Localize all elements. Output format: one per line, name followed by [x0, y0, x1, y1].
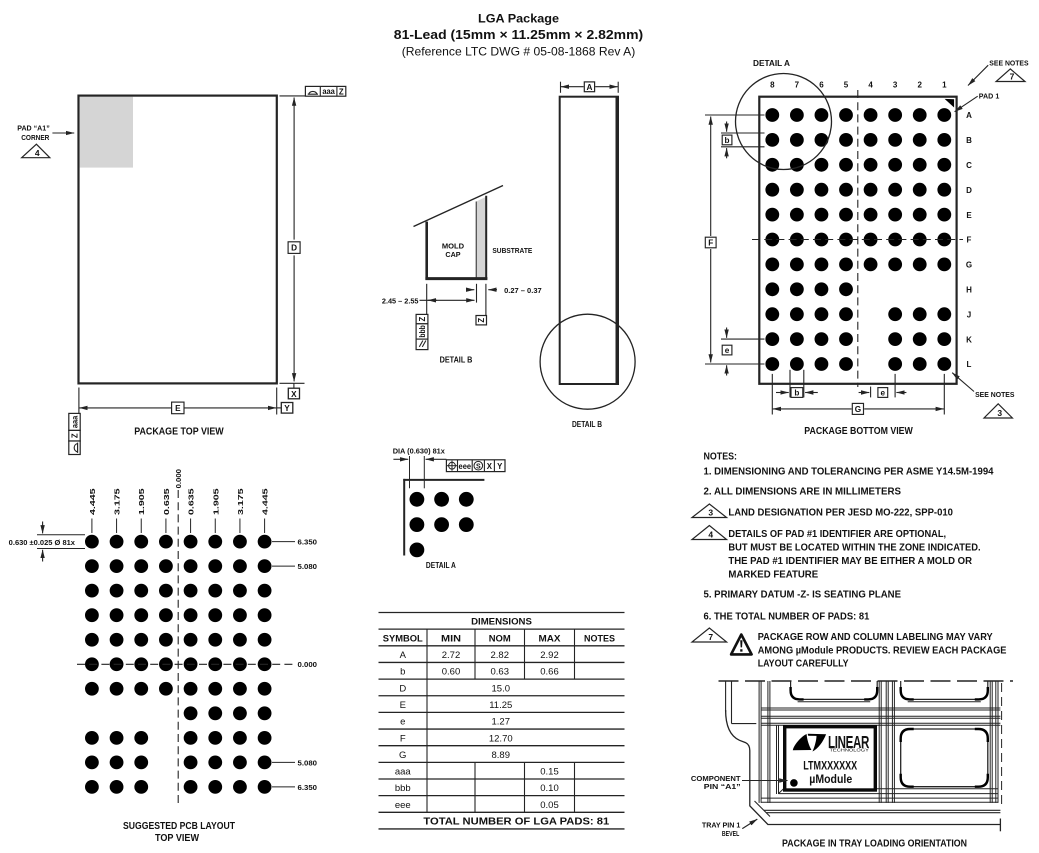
svg-text:NOTES:: NOTES: — [704, 452, 738, 463]
svg-text:3.175: 3.175 — [113, 488, 122, 515]
svg-text:2.92: 2.92 — [540, 650, 559, 661]
svg-text:LAND DESIGNATION PER JESD MO-2: LAND DESIGNATION PER JESD MO-222, SPP-01… — [728, 508, 953, 519]
svg-text:6.350: 6.350 — [298, 538, 318, 547]
svg-text:7: 7 — [708, 632, 713, 642]
svg-text:S: S — [476, 464, 481, 471]
svg-text:3.175: 3.175 — [236, 488, 245, 515]
svg-text:15.0: 15.0 — [492, 683, 511, 694]
svg-text:8: 8 — [770, 80, 775, 89]
svg-text:Y: Y — [284, 404, 290, 413]
svg-text:DETAIL A: DETAIL A — [753, 59, 790, 68]
svg-text:0.63: 0.63 — [491, 667, 510, 678]
svg-text:e: e — [400, 717, 405, 728]
svg-text:bbb: bbb — [418, 325, 427, 338]
svg-text:TOP VIEW: TOP VIEW — [155, 833, 200, 844]
svg-text:0.66: 0.66 — [540, 667, 559, 678]
svg-text:0.27 – 0.37: 0.27 – 0.37 — [504, 286, 542, 295]
svg-text:E: E — [175, 404, 181, 413]
svg-text:1. DIMENSIONING AND TOLERANCIN: 1. DIMENSIONING AND TOLERANCING PER ASME… — [704, 467, 994, 478]
svg-text:SEE NOTES: SEE NOTES — [989, 59, 1028, 68]
svg-text:3: 3 — [708, 508, 713, 518]
svg-text:11.25: 11.25 — [489, 700, 512, 711]
svg-text:1: 1 — [942, 80, 947, 89]
svg-text:8.89: 8.89 — [492, 750, 511, 761]
svg-text:4.445: 4.445 — [88, 488, 97, 515]
svg-text:SEE NOTES: SEE NOTES — [975, 390, 1014, 399]
svg-text:PAD 1: PAD 1 — [979, 91, 1000, 100]
svg-text:E: E — [966, 211, 972, 220]
svg-text:0.635: 0.635 — [162, 488, 171, 515]
svg-text:2: 2 — [917, 80, 922, 89]
svg-text:SUBSTRATE: SUBSTRATE — [492, 246, 532, 255]
svg-text:0.630 ±0.025 Ø 81x: 0.630 ±0.025 Ø 81x — [9, 538, 76, 547]
svg-text:F: F — [400, 733, 406, 744]
svg-text:PIN “A1”: PIN “A1” — [704, 782, 741, 791]
svg-text:F: F — [708, 239, 713, 248]
svg-text:D: D — [966, 186, 972, 195]
svg-text:DIMENSIONS: DIMENSIONS — [471, 616, 532, 627]
svg-text:A: A — [586, 83, 592, 92]
svg-text:5.080: 5.080 — [298, 758, 318, 767]
svg-text:aaa: aaa — [395, 767, 412, 778]
svg-text:6. THE TOTAL NUMBER OF PADS: 8: 6. THE TOTAL NUMBER OF PADS: 81 — [704, 612, 870, 623]
svg-text:D: D — [399, 683, 406, 694]
svg-text:6.350: 6.350 — [298, 783, 318, 792]
svg-text:CORNER: CORNER — [21, 133, 50, 142]
svg-text:PACKAGE TOP VIEW: PACKAGE TOP VIEW — [134, 426, 224, 437]
svg-text:bbb: bbb — [395, 783, 411, 794]
svg-text:A: A — [966, 111, 972, 120]
svg-text:0.05: 0.05 — [540, 800, 559, 811]
svg-text:2.45 – 2.55: 2.45 – 2.55 — [382, 297, 419, 306]
svg-text:2.72: 2.72 — [442, 650, 461, 661]
svg-text:b: b — [794, 389, 799, 398]
svg-text:Z: Z — [477, 318, 486, 323]
svg-text:0.000: 0.000 — [174, 469, 183, 488]
svg-text:SYMBOL: SYMBOL — [383, 633, 423, 644]
svg-text:TECHNOLOGY: TECHNOLOGY — [830, 748, 870, 754]
svg-text:DETAIL B: DETAIL B — [572, 420, 602, 429]
svg-text:MAX: MAX — [539, 633, 562, 644]
svg-text:b: b — [724, 136, 729, 145]
svg-text:X: X — [291, 390, 297, 399]
svg-text:0.10: 0.10 — [540, 783, 559, 794]
svg-text:DETAIL A: DETAIL A — [426, 561, 456, 570]
svg-text:PACKAGE IN TRAY LOADING ORIENT: PACKAGE IN TRAY LOADING ORIENTATION — [782, 838, 967, 850]
svg-text:12.70: 12.70 — [489, 733, 513, 744]
svg-text:A: A — [400, 650, 407, 661]
svg-text:b: b — [400, 667, 405, 678]
svg-text:3: 3 — [893, 80, 898, 89]
svg-text:Z: Z — [418, 316, 427, 321]
svg-text:MARKED FEATURE: MARKED FEATURE — [728, 569, 818, 580]
svg-text:e: e — [725, 346, 730, 355]
svg-text:G: G — [855, 405, 861, 414]
svg-text:BEVEL: BEVEL — [722, 829, 740, 838]
svg-text:LAYOUT CAREFULLY: LAYOUT CAREFULLY — [758, 659, 849, 670]
svg-text:E: E — [400, 700, 406, 711]
svg-text:µModule: µModule — [809, 772, 852, 786]
svg-text:PAD “A1”: PAD “A1” — [17, 123, 50, 132]
svg-text:0.000: 0.000 — [298, 660, 318, 669]
svg-text:0.635: 0.635 — [187, 488, 196, 515]
svg-text:B: B — [966, 136, 972, 145]
svg-text:CAP: CAP — [445, 250, 460, 259]
svg-text:NOTES: NOTES — [584, 633, 615, 644]
svg-text:DETAIL B: DETAIL B — [440, 355, 473, 364]
svg-text:1.905: 1.905 — [211, 488, 220, 515]
svg-text:3: 3 — [997, 408, 1002, 418]
svg-text:aaa: aaa — [322, 87, 335, 96]
svg-text:7: 7 — [1010, 72, 1015, 82]
svg-text:7: 7 — [795, 80, 800, 89]
svg-text:LTMXXXXXX: LTMXXXXXX — [803, 759, 857, 773]
svg-text:D: D — [291, 244, 297, 253]
svg-text:eee: eee — [459, 462, 472, 471]
svg-text:THE PAD #1 IDENTIFIER MAY BE E: THE PAD #1 IDENTIFIER MAY BE EITHER A MO… — [728, 556, 972, 567]
svg-text:5. PRIMARY DATUM -Z- IS SEATIN: 5. PRIMARY DATUM -Z- IS SEATING PLANE — [704, 590, 902, 601]
svg-text:G: G — [966, 261, 972, 270]
svg-text:5: 5 — [844, 80, 849, 89]
svg-text:2. ALL DIMENSIONS ARE IN MILLI: 2. ALL DIMENSIONS ARE IN MILLIMETERS — [704, 486, 902, 497]
svg-text:DIA (0.630) 81x: DIA (0.630) 81x — [393, 446, 446, 455]
svg-text:5.080: 5.080 — [298, 562, 318, 571]
svg-text:F: F — [967, 236, 972, 245]
svg-text:4.445: 4.445 — [261, 488, 270, 515]
svg-text:LGA Package: LGA Package — [478, 11, 559, 25]
svg-text:4: 4 — [35, 148, 40, 158]
svg-text:PACKAGE ROW AND COLUMN LABELIN: PACKAGE ROW AND COLUMN LABELING MAY VARY — [758, 632, 993, 643]
svg-text:aaa: aaa — [70, 415, 79, 428]
svg-text:DETAILS OF PAD #1 IDENTIFIER A: DETAILS OF PAD #1 IDENTIFIER ARE OPTIONA… — [728, 529, 946, 540]
svg-text:TOTAL NUMBER OF LGA PADS: 81: TOTAL NUMBER OF LGA PADS: 81 — [423, 816, 609, 827]
svg-text:e: e — [881, 389, 886, 398]
svg-text:C: C — [966, 161, 972, 170]
svg-text:X: X — [487, 462, 493, 471]
svg-text:H: H — [966, 286, 972, 295]
svg-text:0.15: 0.15 — [540, 767, 559, 778]
svg-text:Y: Y — [497, 462, 503, 471]
svg-text:SUGGESTED PCB LAYOUT: SUGGESTED PCB LAYOUT — [123, 821, 235, 832]
svg-text:1.905: 1.905 — [137, 488, 146, 515]
svg-text:J: J — [967, 310, 971, 319]
svg-text:Z: Z — [70, 433, 79, 438]
svg-text:1.27: 1.27 — [492, 717, 511, 728]
svg-text:NOM: NOM — [489, 633, 511, 644]
svg-text:81-Lead (15mm × 11.25mm × 2.82: 81-Lead (15mm × 11.25mm × 2.82mm) — [394, 27, 643, 42]
svg-text:6: 6 — [819, 80, 824, 89]
svg-text:G: G — [399, 750, 406, 761]
svg-text:2.82: 2.82 — [491, 650, 510, 661]
svg-text:AMONG µModule PRODUCTS. REVIEW: AMONG µModule PRODUCTS. REVIEW EACH PACK… — [758, 645, 1007, 656]
svg-text:K: K — [966, 335, 972, 344]
svg-text:(Reference LTC DWG # 05-08-186: (Reference LTC DWG # 05-08-1868 Rev A) — [402, 44, 636, 58]
svg-text:4: 4 — [868, 80, 873, 89]
svg-text:L: L — [967, 360, 972, 369]
svg-text:eee: eee — [395, 800, 411, 811]
svg-text:BUT MUST BE LOCATED WITHIN THE: BUT MUST BE LOCATED WITHIN THE ZONE INDI… — [728, 542, 980, 553]
svg-text:MIN: MIN — [441, 633, 461, 644]
svg-text:4: 4 — [708, 530, 713, 540]
svg-text:0.60: 0.60 — [442, 667, 461, 678]
svg-text:Z: Z — [339, 87, 344, 96]
svg-text:PACKAGE BOTTOM VIEW: PACKAGE BOTTOM VIEW — [804, 426, 913, 437]
